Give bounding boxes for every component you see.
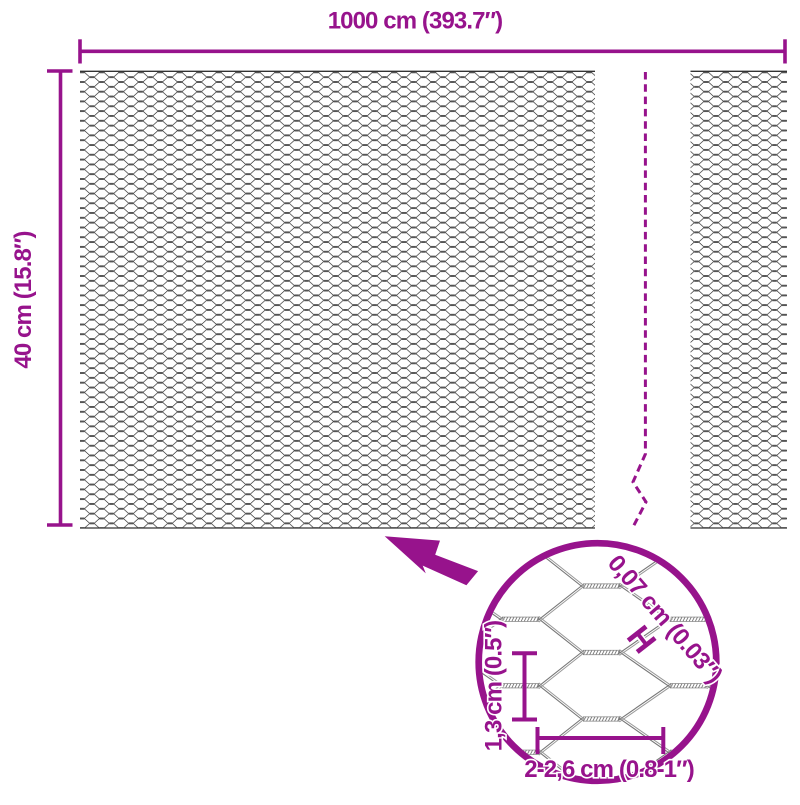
svg-text:1000 cm (393.7″): 1000 cm (393.7″): [328, 8, 503, 35]
svg-text:40 cm (15.8″): 40 cm (15.8″): [10, 231, 37, 368]
svg-text:1,3 cm (0.5″): 1,3 cm (0.5″): [481, 621, 508, 752]
svg-text:2-2,6 cm (0.8-1″): 2-2,6 cm (0.8-1″): [524, 756, 694, 783]
